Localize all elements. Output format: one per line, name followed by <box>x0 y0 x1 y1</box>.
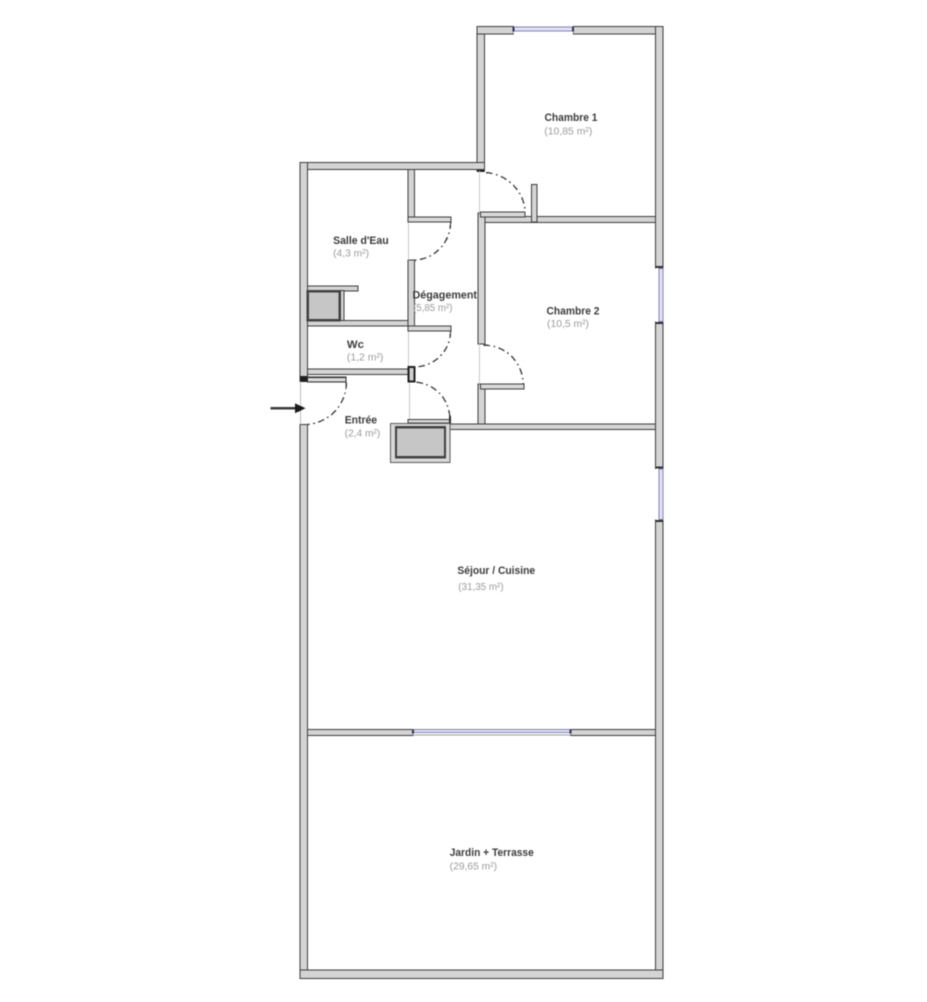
svg-text:(5,85 m²): (5,85 m²) <box>413 303 453 314</box>
svg-text:Dégagement: Dégagement <box>413 289 478 301</box>
svg-text:Salle d'Eau: Salle d'Eau <box>333 235 389 247</box>
svg-text:Chambre 2: Chambre 2 <box>547 305 600 317</box>
svg-text:(31,35 m²): (31,35 m²) <box>458 582 503 593</box>
svg-text:Chambre 1: Chambre 1 <box>545 112 598 124</box>
svg-text:(10,85 m²): (10,85 m²) <box>544 127 592 138</box>
svg-text:Séjour / Cuisine: Séjour / Cuisine <box>457 565 535 577</box>
svg-text:(1,2 m²): (1,2 m²) <box>347 352 384 363</box>
svg-text:Entrée: Entrée <box>345 414 377 426</box>
svg-text:(10,5 m²): (10,5 m²) <box>547 319 589 330</box>
svg-text:(2,4 m²): (2,4 m²) <box>345 429 381 440</box>
svg-text:Jardin + Terrasse: Jardin + Terrasse <box>450 847 534 859</box>
svg-text:(4,3 m²): (4,3 m²) <box>333 248 369 259</box>
svg-text:Wc: Wc <box>347 339 364 351</box>
svg-text:(29,65 m²): (29,65 m²) <box>450 861 497 872</box>
